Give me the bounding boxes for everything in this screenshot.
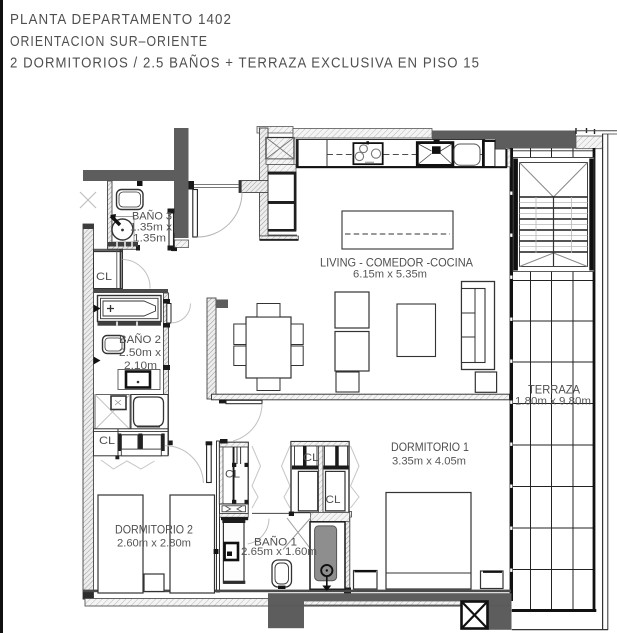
svg-text:BAÑO 2: BAÑO 2 (119, 333, 161, 346)
svg-text:DORMITORIO 1: DORMITORIO 1 (391, 442, 469, 454)
svg-text:2.65m x 1.60m: 2.65m x 1.60m (241, 546, 317, 558)
svg-text:2 DORMITORIOS / 2.5 BAÑOS + TE: 2 DORMITORIOS / 2.5 BAÑOS + TERRAZA EXCL… (10, 55, 480, 72)
svg-text:CL: CL (326, 494, 341, 506)
svg-text:CL: CL (225, 469, 240, 481)
svg-text:6.15m x 5.35m: 6.15m x 5.35m (353, 269, 427, 281)
svg-text:CL: CL (303, 452, 319, 464)
svg-text:2.10m: 2.10m (124, 360, 157, 372)
svg-text:DORMITORIO 2: DORMITORIO 2 (115, 525, 193, 537)
svg-text:2.50m x: 2.50m x (119, 347, 162, 359)
svg-text:3.35m x 4.05m: 3.35m x 4.05m (392, 456, 466, 468)
svg-text:1.35m: 1.35m (133, 233, 166, 245)
svg-text:CL: CL (99, 435, 115, 447)
svg-text:1.80m x 9.80m: 1.80m x 9.80m (515, 396, 591, 408)
svg-text:CL: CL (96, 271, 112, 283)
svg-text:PLANTA DEPARTAMENTO 1402: PLANTA DEPARTAMENTO 1402 (10, 11, 232, 28)
svg-text:ORIENTACION SUR–ORIENTE: ORIENTACION SUR–ORIENTE (10, 33, 208, 50)
svg-text:2.60m x 2.80m: 2.60m x 2.80m (117, 538, 191, 550)
